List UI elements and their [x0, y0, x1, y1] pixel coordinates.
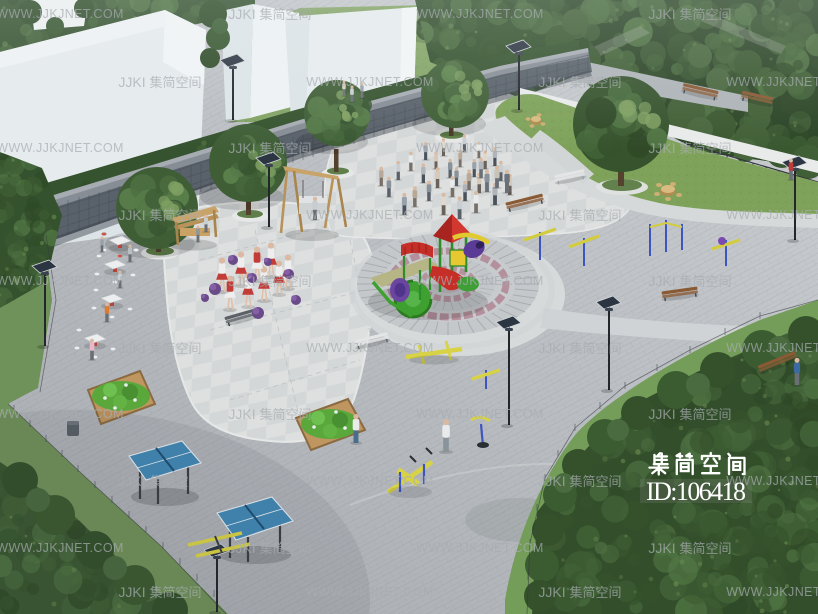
svg-text:JJKI 集简空间: JJKI 集简空间 — [648, 140, 731, 156]
svg-text:JJKI 集简空间: JJKI 集简空间 — [118, 207, 201, 223]
svg-text:WWW.JJKJNET.COM: WWW.JJKJNET.COM — [0, 541, 124, 555]
svg-text:WWW.JJKJNET.COM: WWW.JJKJNET.COM — [416, 541, 544, 555]
svg-text:WWW.JJKJNET.COM: WWW.JJKJNET.COM — [306, 341, 434, 355]
svg-text:JJKI 集简空间: JJKI 集简空间 — [538, 584, 621, 600]
svg-text:WWW.JJKJNET.COM: WWW.JJKJNET.COM — [306, 208, 434, 222]
svg-text:JJKI 集简空间: JJKI 集简空间 — [538, 207, 621, 223]
svg-text:JJKI 集简空间: JJKI 集简空间 — [538, 340, 621, 356]
svg-text:JJKI 集简空间: JJKI 集简空间 — [118, 473, 201, 489]
svg-text:WWW.JJKJNET.COM: WWW.JJKJNET.COM — [726, 75, 818, 89]
svg-text:WWW.JJKJNET.COM: WWW.JJKJNET.COM — [416, 7, 544, 21]
svg-text:WWW.JJKJNET.COM: WWW.JJKJNET.COM — [726, 208, 818, 222]
svg-text:WWW.JJKJNET.COM: WWW.JJKJNET.COM — [0, 141, 124, 155]
svg-text:WWW.JJKJNET.COM: WWW.JJKJNET.COM — [726, 341, 818, 355]
svg-text:WWW.JJKJNET.COM: WWW.JJKJNET.COM — [0, 274, 124, 288]
svg-text:WWW.JJKJNET.COM: WWW.JJKJNET.COM — [306, 474, 434, 488]
svg-text:JJKI 集简空间: JJKI 集简空间 — [648, 406, 731, 422]
svg-text:JJKI 集简空间: JJKI 集简空间 — [228, 540, 311, 556]
svg-text:JJKI 集简空间: JJKI 集简空间 — [228, 140, 311, 156]
svg-text:WWW.JJKJNET.COM: WWW.JJKJNET.COM — [726, 585, 818, 599]
svg-text:WWW.JJKJNET.COM: WWW.JJKJNET.COM — [0, 7, 124, 21]
svg-text:WWW.JJKJNET.COM: WWW.JJKJNET.COM — [416, 141, 544, 155]
svg-text:JJKI 集简空间: JJKI 集简空间 — [228, 6, 311, 22]
svg-text:WWW.JJKJNET.COM: WWW.JJKJNET.COM — [416, 274, 544, 288]
svg-text:WWW.JJKJNET.COM: WWW.JJKJNET.COM — [306, 585, 434, 599]
svg-text:JJKI 集简空间: JJKI 集简空间 — [538, 473, 621, 489]
svg-text:WWW.JJKJNET.COM: WWW.JJKJNET.COM — [0, 407, 124, 421]
svg-text:JJKI 集简空间: JJKI 集简空间 — [648, 540, 731, 556]
svg-text:JJKI 集简空间: JJKI 集简空间 — [538, 74, 621, 90]
svg-text:JJKI 集简空间: JJKI 集简空间 — [118, 340, 201, 356]
svg-text:JJKI 集简空间: JJKI 集简空间 — [648, 273, 731, 289]
svg-text:ID:106418: ID:106418 — [646, 477, 746, 506]
svg-text:JJKI 集简空间: JJKI 集简空间 — [118, 584, 201, 600]
svg-text:JJKI 集简空间: JJKI 集简空间 — [648, 6, 731, 22]
svg-text:JJKI 集简空间: JJKI 集简空间 — [118, 74, 201, 90]
svg-text:JJKI 集简空间: JJKI 集简空间 — [228, 273, 311, 289]
svg-text:WWW.JJKJNET.COM: WWW.JJKJNET.COM — [416, 407, 544, 421]
svg-text:JJKI 集简空间: JJKI 集简空间 — [228, 406, 311, 422]
svg-text:WWW.JJKJNET.COM: WWW.JJKJNET.COM — [306, 75, 434, 89]
